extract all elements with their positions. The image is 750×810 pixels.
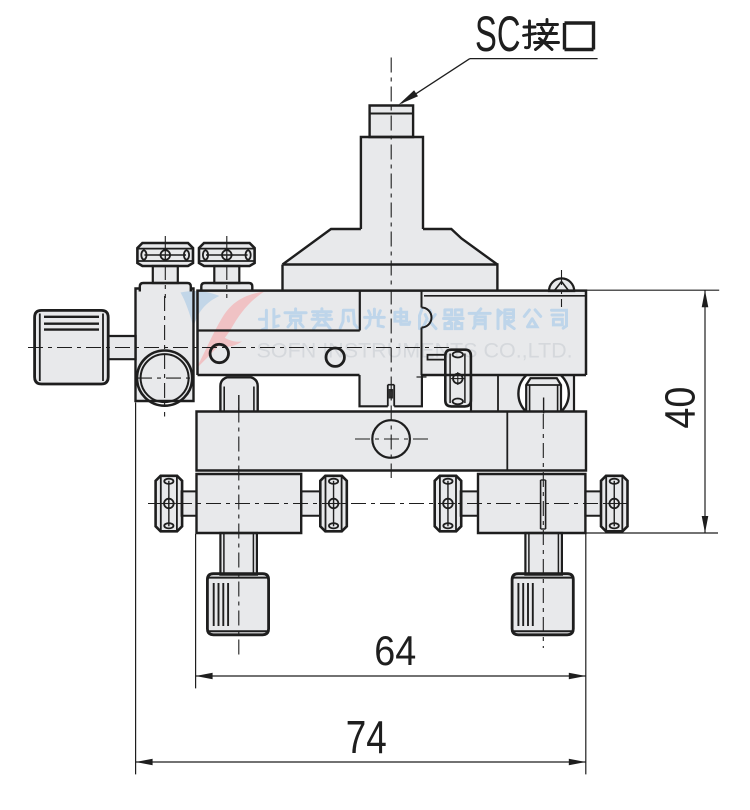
svg-text:SOFN INSTRUMENTS CO.,LTD.: SOFN INSTRUMENTS CO.,LTD. — [257, 339, 573, 363]
svg-text:64: 64 — [374, 628, 416, 674]
svg-text:40: 40 — [655, 387, 704, 429]
svg-text:74: 74 — [346, 711, 387, 763]
svg-text:SC: SC — [475, 6, 520, 62]
